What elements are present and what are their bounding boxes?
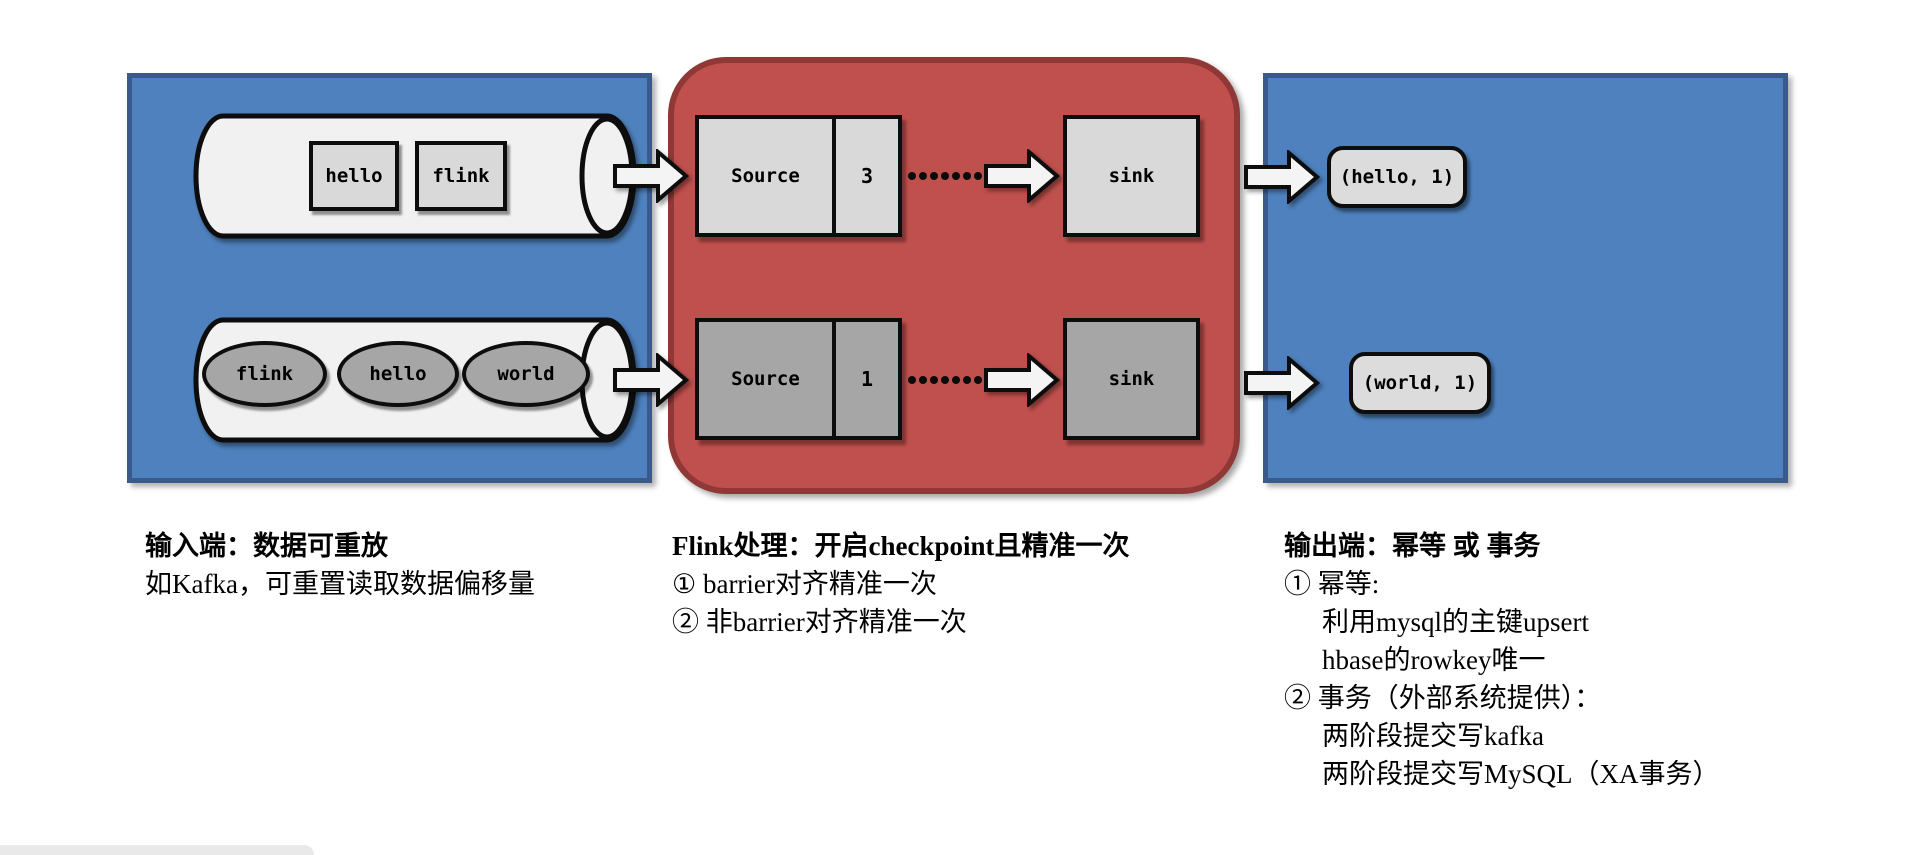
input-caption-line: 如Kafka，可重置读取数据偏移量 (145, 565, 535, 603)
source-buffer-count: 3 (836, 119, 898, 233)
result-tuple-pill: (world, 1) (1349, 352, 1491, 414)
browser-statusbar-tab (0, 845, 314, 855)
source-operator-box: Source 1 (695, 318, 902, 440)
processing-caption: Flink处理：开启checkpoint且精准一次 ① barrier对齐精准一… (672, 527, 1130, 641)
result-tuple-label: (hello, 1) (1340, 166, 1454, 188)
ellipsis-dot (963, 376, 971, 384)
sink-operator-box: sink (1063, 115, 1200, 237)
ellipsis-dot (974, 376, 982, 384)
output-section-panel (1263, 73, 1788, 483)
processing-caption-line: ① barrier对齐精准一次 (672, 565, 1130, 603)
result-tuple-label: (world, 1) (1363, 372, 1477, 394)
queue-record-box: flink (415, 141, 507, 211)
ellipsis-dot (952, 172, 960, 180)
sink-operator-box: sink (1063, 318, 1200, 440)
processing-caption-line: ② 非barrier对齐精准一次 (672, 603, 1130, 641)
output-caption-line: 两阶段提交写MySQL（XA事务） (1284, 755, 1720, 793)
source-buffer-count: 1 (836, 322, 898, 436)
flow-arrow-icon (984, 149, 1060, 203)
output-caption-title: 输出端：幂等 或 事务 (1284, 527, 1720, 565)
source-label: Source (699, 322, 836, 436)
ellipsis-dot (941, 376, 949, 384)
sink-label: sink (1109, 368, 1155, 390)
output-caption-line: hbase的rowkey唯一 (1284, 641, 1720, 679)
ellipsis-dot (941, 172, 949, 180)
output-caption-line: 利用mysql的主键upsert (1284, 603, 1720, 641)
record-label: flink (432, 165, 489, 187)
output-caption-line: 两阶段提交写kafka (1284, 717, 1720, 755)
flow-arrow-icon (613, 353, 689, 407)
output-caption: 输出端：幂等 或 事务 ① 幂等: 利用mysql的主键upsert hbase… (1284, 527, 1720, 793)
ellipsis-dot (974, 172, 982, 180)
input-caption: 输入端：数据可重放 如Kafka，可重置读取数据偏移量 (145, 527, 535, 603)
record-label: hello (325, 165, 382, 187)
flow-arrow-icon (613, 149, 689, 203)
flow-arrow-icon (1244, 356, 1320, 410)
queue-record-box: hello (309, 141, 399, 211)
queue-record-ellipse: hello (337, 341, 459, 407)
output-caption-line: ② 事务（外部系统提供）： (1284, 679, 1720, 717)
stream-ellipsis-dots (908, 172, 982, 180)
ellipsis-dot (908, 172, 916, 180)
ellipsis-dot (919, 376, 927, 384)
flow-arrow-icon (984, 353, 1060, 407)
flink-exactly-once-diagram: hello flink flink hello world Source 3 S… (0, 0, 1920, 855)
source-operator-box: Source 3 (695, 115, 902, 237)
result-tuple-pill: (hello, 1) (1327, 146, 1467, 208)
record-label: world (497, 363, 554, 385)
ellipsis-dot (930, 172, 938, 180)
source-label: Source (699, 119, 836, 233)
record-label: flink (236, 363, 293, 385)
ellipsis-dot (952, 376, 960, 384)
ellipsis-dot (908, 376, 916, 384)
ellipsis-dot (930, 376, 938, 384)
stream-ellipsis-dots (908, 376, 982, 384)
sink-label: sink (1109, 165, 1155, 187)
processing-caption-title: Flink处理：开启checkpoint且精准一次 (672, 527, 1130, 565)
record-label: hello (369, 363, 426, 385)
ellipsis-dot (919, 172, 927, 180)
output-caption-line: ① 幂等: (1284, 565, 1720, 603)
queue-record-ellipse: world (462, 341, 590, 407)
ellipsis-dot (963, 172, 971, 180)
queue-record-ellipse: flink (202, 341, 327, 407)
input-caption-title: 输入端：数据可重放 (145, 527, 535, 565)
flow-arrow-icon (1244, 150, 1320, 204)
